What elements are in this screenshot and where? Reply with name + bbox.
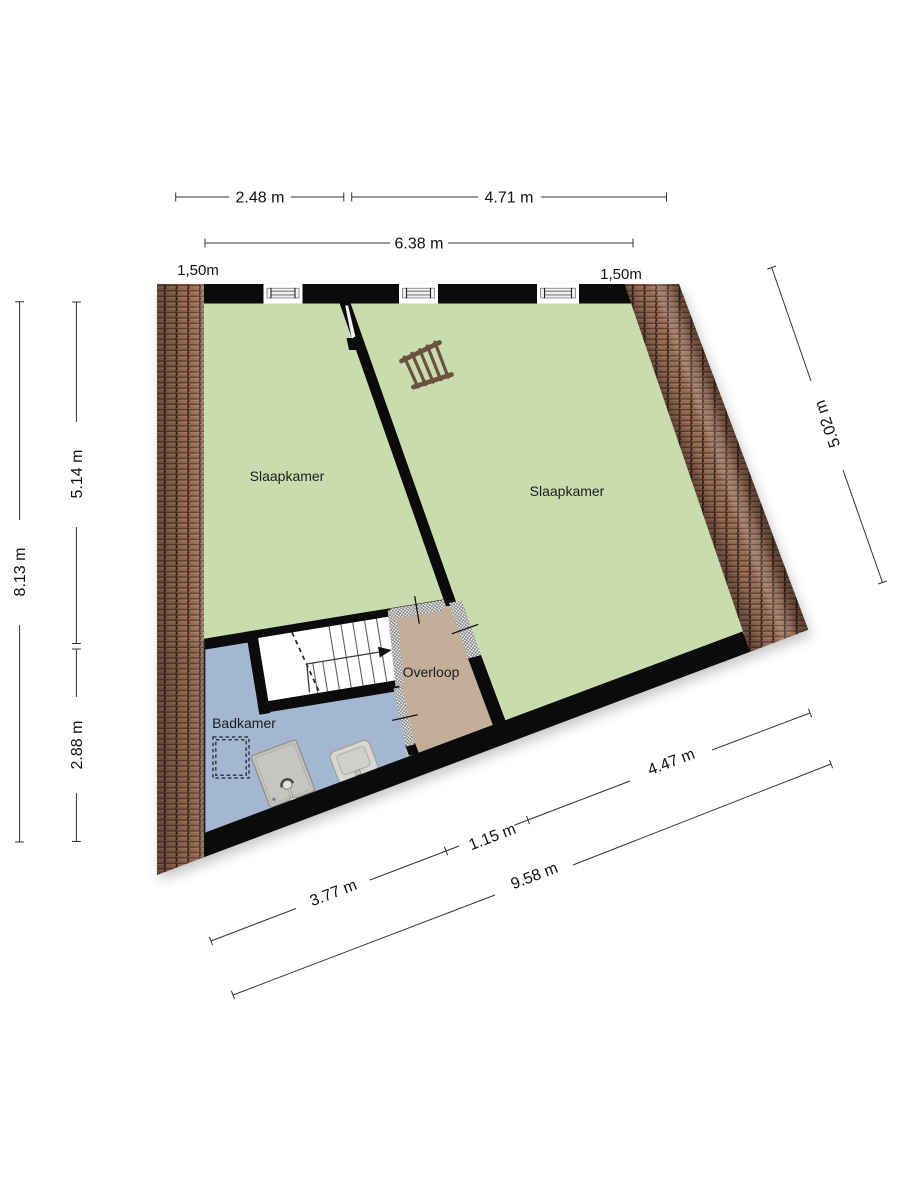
svg-text:2.88 m: 2.88 m [69,721,86,770]
svg-text:6.38 m: 6.38 m [395,236,444,253]
svg-text:Overloop: Overloop [403,664,460,680]
svg-text:Slaapkamer: Slaapkamer [530,483,605,499]
svg-text:Slaapkamer: Slaapkamer [250,468,325,484]
svg-text:Badkamer: Badkamer [212,715,276,731]
svg-text:1,50m: 1,50m [177,262,219,279]
svg-text:4.71 m: 4.71 m [485,190,534,207]
svg-text:8.13 m: 8.13 m [12,548,29,597]
svg-text:2.48 m: 2.48 m [236,190,285,207]
svg-text:1,50m: 1,50m [600,266,642,283]
svg-text:5.14 m: 5.14 m [69,450,86,499]
